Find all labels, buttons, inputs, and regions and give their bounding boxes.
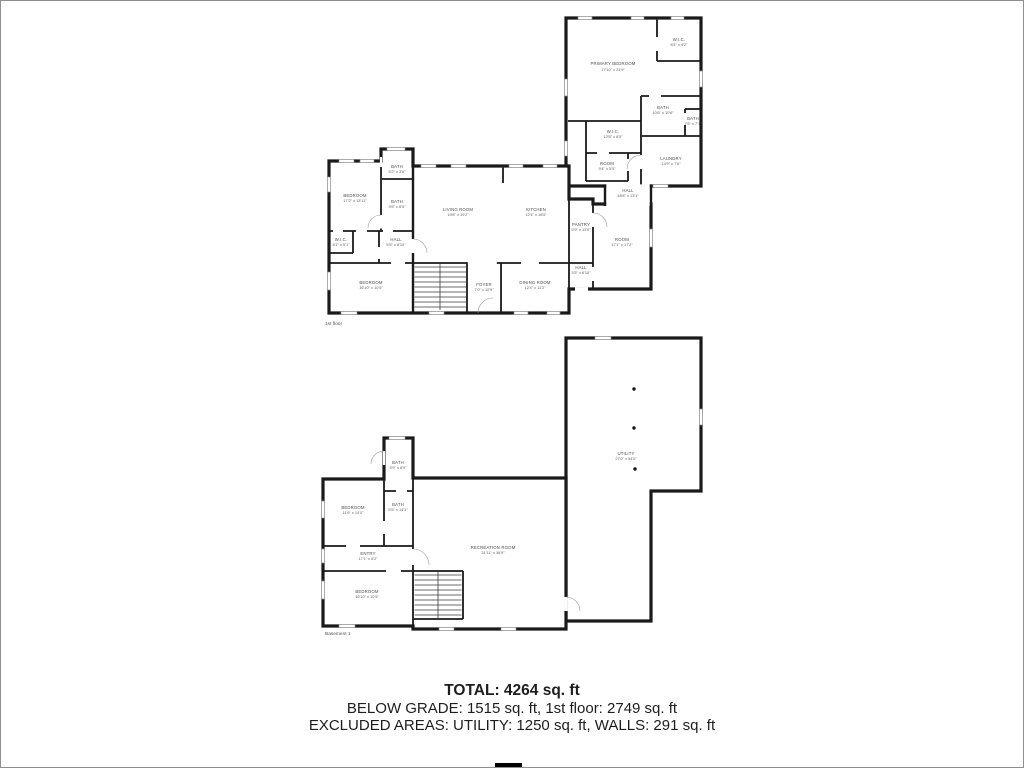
room-dims-bath-ensuite: 7'6" x 7'1" [684, 121, 702, 126]
room-dims-bedroom-1: 17'2" x 13'11" [343, 198, 367, 203]
room-dims-hall-small: 3'5" x 6'10" [571, 270, 591, 275]
page-edge-mark [495, 763, 522, 768]
room-dims-dining-room: 12'4" x 11'2" [524, 285, 546, 290]
room-dims-bath-mid: 9'5" x 8'5" [388, 204, 406, 209]
room-dims-bath-primary: 10'6" x 10'6" [652, 110, 674, 115]
summary-excluded: EXCLUDED AREAS: UTILITY: 1250 sq. ft, WA… [1, 717, 1023, 735]
room-dims-hall-left: 5'5" x 8'10" [386, 242, 406, 247]
basement-utility-outline [566, 338, 701, 621]
room-dims-utility: 27'0" x 54'0" [615, 456, 637, 461]
basement-label: Basement 1 [325, 631, 351, 637]
summary-total: TOTAL: 4264 sq. ft [1, 682, 1023, 700]
room-dims-bedroom-b-2: 16'10" x 10'5" [355, 594, 379, 599]
room-dims-kitchen: 12'4" x 18'5" [525, 212, 547, 217]
room-dims-primary-bedroom: 17'10" x 21'9" [601, 67, 625, 72]
room-name-primary-bedroom: PRIMARY BEDROOM [590, 61, 635, 66]
floorplan-drawing: PRIMARY BEDROOM 17'10" x 21'9" W.I.C. 8'… [1, 1, 1024, 768]
room-dims-bath-b-top: 5'9" x 8'9" [389, 465, 407, 470]
room-dims-living-room: 19'8" x 19'2" [447, 212, 469, 217]
first-floor-plan: PRIMARY BEDROOM 17'10" x 21'9" W.I.C. 8'… [325, 16, 703, 327]
room-dims-room-right: 17'1" x 17'2" [611, 242, 633, 247]
room-dims-wic-small: 5'1" x 5'1" [332, 242, 350, 247]
area-summary: TOTAL: 4264 sq. ft BELOW GRADE: 1515 sq.… [1, 682, 1023, 735]
room-dims-recreation-room: 31'11" x 36'9" [481, 550, 505, 555]
summary-below-grade: BELOW GRADE: 1515 sq. ft, 1st floor: 274… [1, 700, 1023, 718]
room-dims-wic-2: 12'8" x 8'5" [603, 134, 623, 139]
room-dims-hall-upper: 18'8" x 13'1" [617, 193, 639, 198]
first-floor-label: 1st floor [325, 321, 342, 327]
room-dims-laundry: 14'9" x 7'6" [661, 161, 681, 166]
room-dims-foyer: 7'0" x 10'9" [474, 287, 494, 292]
room-dims-entry: 17'1" x 8'2" [358, 556, 378, 561]
room-dims-bedroom-b-1: 11'9" x 14'0" [342, 510, 364, 515]
room-dims-pantry: 5'9" x 13'9" [571, 227, 591, 232]
room-dims-room-small: 9'4" x 5'5" [598, 166, 616, 171]
room-dims-bath-b-mid: 5'5" x 14'3" [388, 507, 408, 512]
room-dims-wic-primary: 8'4" x 9'2" [670, 42, 688, 47]
room-dims-bath-top: 5'2" x 3'6" [388, 169, 406, 174]
floorplan-page: PRIMARY BEDROOM 17'10" x 21'9" W.I.C. 8'… [0, 0, 1024, 768]
basement-plan: UTILITY 27'0" x 54'0" BATH 5'9" x 8'9" B… [321, 336, 702, 637]
room-dims-bedroom-2: 16'10" x 10'5" [359, 285, 383, 290]
